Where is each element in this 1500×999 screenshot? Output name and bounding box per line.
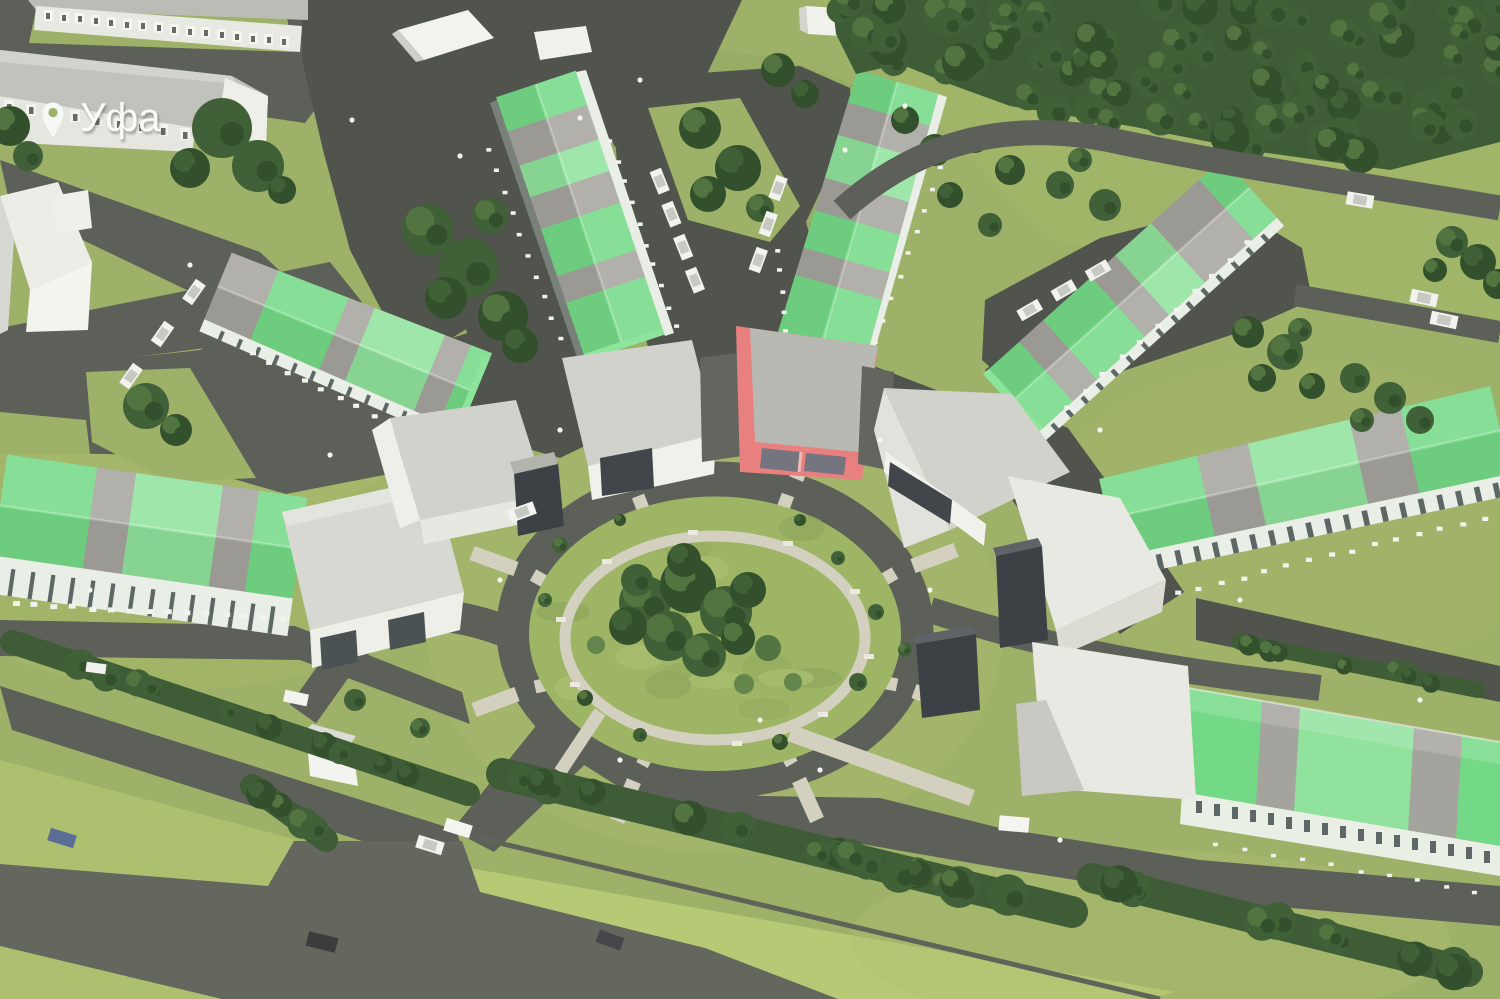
svg-text:Уфа: Уфа — [80, 96, 162, 140]
